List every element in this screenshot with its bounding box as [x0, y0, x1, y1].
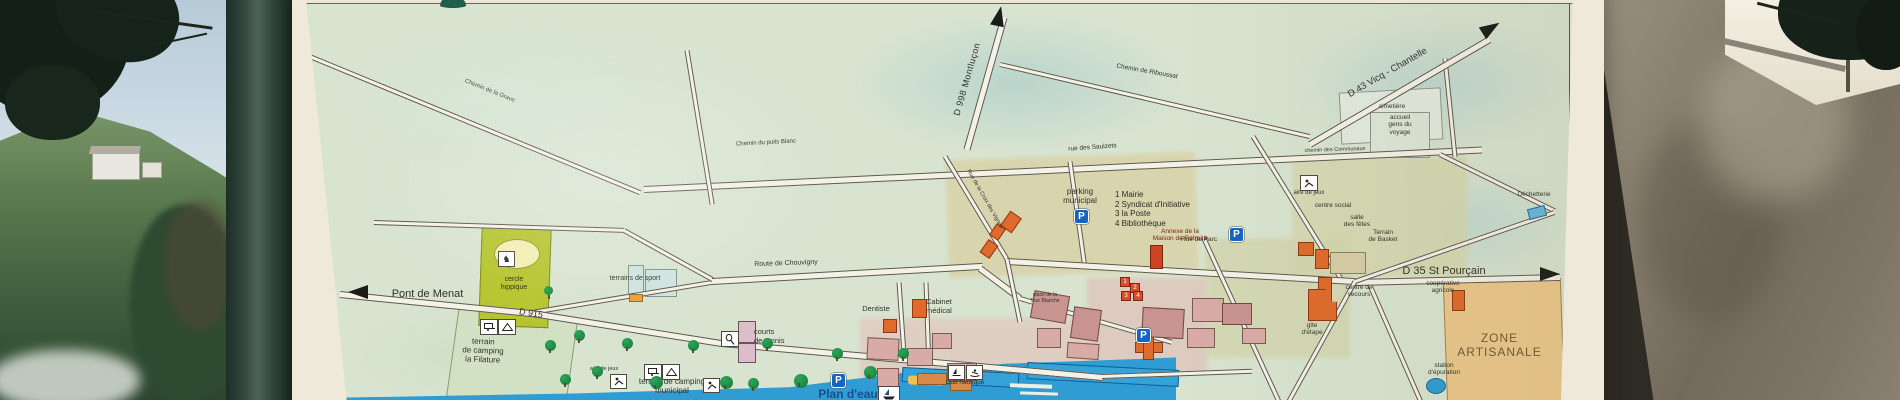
playground-icon — [1300, 175, 1318, 191]
tree-icon — [898, 348, 909, 359]
place-label: terrain de camping la Filature — [434, 335, 533, 366]
place-label: cercle hippique — [482, 276, 546, 292]
building — [1222, 303, 1252, 325]
tree-clump — [165, 200, 235, 330]
place-label: centre de secours — [1332, 284, 1386, 299]
legend-line: 2 Syndicat d'Initiative — [1115, 200, 1190, 210]
place-label: Déchetterie — [1504, 191, 1564, 198]
parking-icon: P — [1230, 228, 1243, 241]
place-label: parking municipal — [1050, 187, 1110, 205]
place-label: place de la Tour Blanche — [1022, 293, 1068, 305]
house-on-hill — [142, 162, 162, 178]
legend-line: 3 la Poste — [1115, 209, 1190, 219]
parking-icon: P — [1137, 329, 1150, 342]
caravan-icon — [480, 319, 498, 335]
tennis-racket-icon — [721, 331, 739, 347]
treatment-plant-pond — [1426, 378, 1446, 394]
place-label: station d'épuration — [1416, 362, 1472, 377]
place-label: cimetière — [1370, 103, 1414, 110]
signpost-pole — [226, 0, 294, 400]
place-label: Cabinet médical — [926, 298, 978, 315]
place-label: club nautique — [938, 379, 992, 386]
legend-marker: 4 — [1133, 291, 1143, 301]
building — [1037, 328, 1061, 348]
tent-icon — [662, 364, 680, 380]
building — [907, 348, 933, 366]
parking-icon: P — [1075, 210, 1088, 223]
bush — [0, 350, 140, 400]
place-label: aire de jeux — [582, 366, 626, 372]
building — [932, 333, 952, 349]
building — [877, 368, 899, 388]
parking-icon: P — [832, 374, 845, 387]
tree-icon — [762, 338, 773, 349]
place-label: Annexe de la Maison de Retraite — [1140, 228, 1220, 243]
panel-frame — [292, 0, 1604, 4]
building — [1066, 342, 1099, 360]
tree-icon — [794, 374, 808, 388]
sport-building — [629, 294, 643, 302]
tree-icon — [688, 340, 699, 351]
boat-icon — [878, 386, 900, 400]
sports-hall — [1330, 252, 1366, 274]
tree-icon — [832, 348, 843, 359]
field — [852, 16, 1182, 151]
house-roof — [89, 146, 141, 154]
medical-building — [912, 299, 927, 318]
building — [1070, 306, 1102, 342]
social-centre-building — [1298, 242, 1314, 256]
sail-icon — [948, 365, 965, 380]
tree-icon — [622, 338, 633, 349]
place-label: terrains de sport — [600, 275, 670, 283]
building — [1192, 298, 1224, 322]
tree-icon — [720, 376, 733, 389]
foliage-icon — [5, 65, 100, 140]
place-label: centre social — [1302, 202, 1364, 209]
road-label: D 35 St Pourçain — [1394, 265, 1494, 278]
legend-line: 1 Mairie — [1115, 190, 1190, 200]
tree-icon — [545, 340, 556, 351]
building — [1187, 328, 1215, 348]
legend-marker: 3 — [1121, 291, 1131, 301]
tree-icon — [574, 330, 585, 341]
map-legend: 1 Mairie 2 Syndicat d'Initiative 3 la Po… — [1115, 190, 1190, 228]
hall-building — [1315, 249, 1329, 269]
direction-arrow-icon — [348, 285, 368, 299]
tree-icon — [592, 366, 603, 377]
place-label: Plan d'eau — [816, 388, 880, 400]
dentist-building — [883, 319, 897, 333]
tree-icon — [864, 366, 877, 379]
tree-icon — [650, 376, 663, 389]
sign-logo — [440, 0, 466, 8]
tennis-courts — [738, 343, 756, 363]
tree-icon — [748, 378, 759, 389]
place-label: ZONE ARTISANALE — [1447, 332, 1552, 360]
place-label: salle des fêtes — [1334, 214, 1380, 229]
retirement-home-building — [1150, 245, 1163, 269]
place-label: gîte d'étape — [1288, 322, 1336, 337]
map-sign-panel: 1 2 3 4 Pont de Menat D 915 D 998 Montlu… — [292, 0, 1604, 400]
direction-arrow-icon — [1540, 267, 1560, 281]
legend-line: 4 Bibliothèque — [1115, 219, 1190, 229]
building — [866, 337, 899, 361]
place-label: aire de jeux — [1280, 190, 1338, 197]
place-label: Terrain de Basket — [1356, 229, 1410, 244]
house-on-hill — [92, 152, 140, 180]
tree-icon — [560, 374, 571, 385]
place-label: coopérative agricole — [1412, 280, 1474, 295]
playground-icon — [610, 374, 627, 389]
tree-icon — [544, 286, 553, 295]
playground-icon — [703, 378, 720, 393]
photo-of-town-map-sign: 1 2 3 4 Pont de Menat D 915 D 998 Montlu… — [0, 0, 1900, 400]
place-label: accueil gens du voyage — [1378, 114, 1422, 136]
building — [1242, 328, 1266, 344]
road-label: Pont de Menat — [380, 288, 475, 301]
legend-marker: 1 — [1120, 277, 1130, 287]
place-label: Dentiste — [848, 305, 904, 314]
tent-icon — [498, 319, 516, 335]
canoe-icon — [966, 365, 983, 380]
horse-icon: ♞ — [498, 251, 515, 267]
